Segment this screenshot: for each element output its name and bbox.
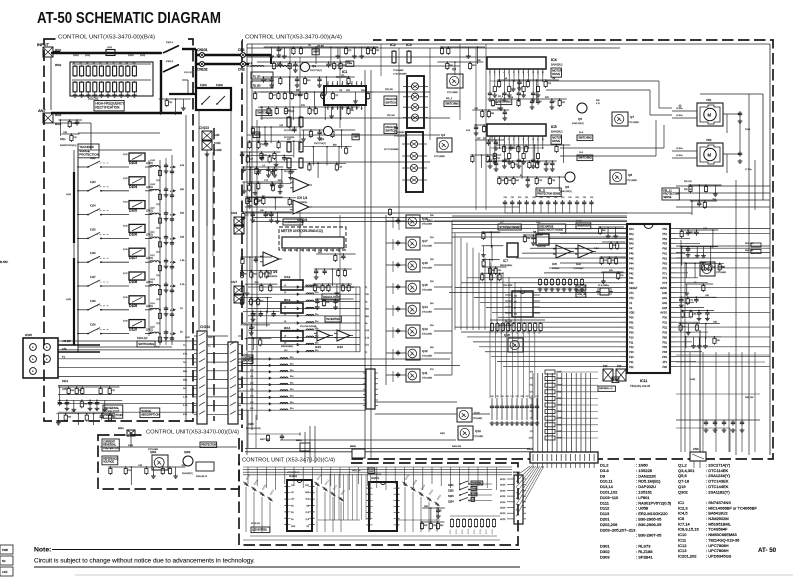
svg-text:9BA: 9BA bbox=[365, 308, 369, 311]
svg-text:: 1S5226: : 1S5226 bbox=[636, 468, 653, 473]
svg-text:: B30-2905-05: : B30-2905-05 bbox=[636, 517, 662, 522]
svg-text:P21: P21 bbox=[629, 360, 634, 364]
svg-text:C19: C19 bbox=[260, 144, 263, 146]
svg-text:: BA6418U2: : BA6418U2 bbox=[706, 511, 728, 516]
svg-text:RECTIFICATION: RECTIFICATION bbox=[95, 106, 120, 110]
svg-text:R60: R60 bbox=[501, 180, 504, 182]
svg-text:U05B: U05B bbox=[62, 388, 68, 391]
svg-text:Q302: Q302 bbox=[184, 450, 191, 454]
svg-text:W103: W103 bbox=[55, 114, 62, 117]
svg-text:: ER2-M10GK220: : ER2-M10GK220 bbox=[636, 511, 668, 516]
svg-text:ANT: ANT bbox=[38, 108, 47, 113]
svg-text:P40: P40 bbox=[629, 281, 634, 285]
svg-text:C114: C114 bbox=[156, 275, 160, 277]
svg-text:D104: D104 bbox=[129, 185, 137, 189]
svg-text:1: 1 bbox=[683, 299, 684, 301]
svg-text:LF801: LF801 bbox=[146, 281, 153, 284]
svg-text:: RLS73: : RLS73 bbox=[636, 544, 651, 549]
svg-text:Q18: Q18 bbox=[422, 217, 428, 221]
svg-text:SENSE: SENSE bbox=[663, 196, 672, 199]
svg-text:Q18: Q18 bbox=[504, 333, 510, 337]
svg-text:LED BATT(B): LED BATT(B) bbox=[252, 528, 267, 531]
svg-text:C113: C113 bbox=[156, 251, 160, 253]
svg-text:PA2: PA2 bbox=[629, 232, 634, 236]
svg-text:C85: C85 bbox=[516, 396, 519, 398]
svg-text:K1102: K1102 bbox=[216, 84, 223, 87]
svg-text:R47: R47 bbox=[288, 110, 291, 112]
svg-text:: B30-2907-05: : B30-2907-05 bbox=[636, 533, 662, 538]
svg-text:Q15: Q15 bbox=[422, 283, 428, 287]
svg-text:L105: L105 bbox=[66, 299, 72, 301]
svg-text:+88 13F: +88 13F bbox=[62, 340, 71, 343]
svg-text:1: 1 bbox=[284, 250, 285, 252]
svg-text:Q11: Q11 bbox=[422, 371, 428, 375]
svg-text:D103: D103 bbox=[129, 161, 137, 165]
svg-text:P52: P52 bbox=[662, 237, 667, 241]
svg-text:CD4 CD5: CD4 CD5 bbox=[503, 285, 513, 287]
svg-text:INPUT: INPUT bbox=[37, 42, 50, 47]
svg-text:D109: D109 bbox=[129, 304, 137, 308]
svg-text:P50: P50 bbox=[662, 227, 667, 231]
svg-text:90u: 90u bbox=[315, 343, 318, 345]
svg-text:: LF801: : LF801 bbox=[636, 495, 650, 500]
svg-text:11: 11 bbox=[537, 72, 539, 74]
svg-text:A7A: A7A bbox=[183, 413, 188, 416]
svg-text:COMPARATOR: COMPARATOR bbox=[284, 220, 304, 224]
svg-text:: NJM2902M: : NJM2902M bbox=[706, 516, 729, 521]
svg-text:C710: C710 bbox=[529, 438, 533, 440]
svg-text:12: 12 bbox=[542, 72, 544, 74]
svg-text:D303 NE-76: D303 NE-76 bbox=[196, 476, 208, 478]
svg-text:34: 34 bbox=[92, 402, 94, 404]
svg-text:DTC143EK: DTC143EK bbox=[422, 268, 433, 270]
svg-text:C19: C19 bbox=[682, 327, 685, 329]
svg-text:C10: C10 bbox=[538, 180, 541, 182]
svg-text:R403 R60: R403 R60 bbox=[452, 446, 462, 448]
svg-text:DBL_11: DBL_11 bbox=[537, 190, 546, 192]
svg-text:DTC143EK: DTC143EK bbox=[422, 290, 433, 292]
svg-text:Q6: Q6 bbox=[565, 185, 569, 189]
svg-text:Q5,6: Q5,6 bbox=[678, 473, 687, 478]
svg-text:IC201,202: IC201,202 bbox=[678, 553, 697, 558]
svg-text:5: 5 bbox=[508, 139, 509, 141]
svg-text:MODE: MODE bbox=[500, 496, 506, 498]
svg-text:S202: S202 bbox=[448, 490, 454, 493]
svg-text:L108: L108 bbox=[150, 160, 156, 162]
svg-text:90u: 90u bbox=[290, 408, 293, 410]
svg-text:P42: P42 bbox=[629, 271, 634, 275]
svg-text:11: 11 bbox=[337, 108, 339, 110]
svg-text:: 1S5161: : 1S5161 bbox=[636, 490, 653, 495]
svg-text:W602: W602 bbox=[350, 446, 356, 448]
svg-text:Note:: Note: bbox=[34, 547, 51, 554]
svg-text:P33: P33 bbox=[662, 330, 667, 334]
svg-text:D110: D110 bbox=[129, 328, 137, 332]
svg-text:D101,102: D101,102 bbox=[600, 490, 618, 495]
svg-text:SEL0: SEL0 bbox=[490, 329, 492, 334]
svg-text:SYSTEM RESET: SYSTEM RESET bbox=[499, 225, 521, 229]
svg-text:: RLZ188: : RLZ188 bbox=[636, 549, 653, 554]
svg-text:SWITCHING: SWITCHING bbox=[578, 136, 592, 139]
svg-text:IC5: IC5 bbox=[551, 125, 557, 129]
svg-text:8: 8 bbox=[523, 72, 524, 74]
svg-text:: NM93C66EM83: : NM93C66EM83 bbox=[706, 532, 737, 537]
svg-text:IC6: IC6 bbox=[678, 516, 685, 521]
svg-text:D302: D302 bbox=[600, 549, 610, 554]
svg-text:MODE: MODE bbox=[500, 508, 506, 510]
svg-text:P31: P31 bbox=[662, 321, 667, 325]
svg-text:TC4066BF: TC4066BF bbox=[393, 70, 404, 72]
svg-text:DTC143EK: DTC143EK bbox=[148, 449, 159, 451]
svg-text:GNC: GNC bbox=[185, 337, 190, 339]
svg-text:1: 1 bbox=[327, 84, 328, 86]
svg-text:SEL8: SEL8 bbox=[533, 329, 535, 334]
svg-text:15: 15 bbox=[356, 108, 358, 110]
svg-text:R105: R105 bbox=[745, 129, 751, 131]
svg-text:: B30-2906-05: : B30-2906-05 bbox=[636, 522, 662, 527]
svg-text:R2 100: R2 100 bbox=[253, 86, 261, 88]
svg-text:A7A: A7A bbox=[466, 129, 471, 132]
svg-text:C25: C25 bbox=[335, 95, 338, 97]
svg-text:Q302: Q302 bbox=[678, 489, 689, 494]
svg-text:IC1: IC1 bbox=[342, 70, 347, 74]
svg-text:R38: R38 bbox=[70, 390, 73, 392]
svg-text:9: 9 bbox=[327, 108, 328, 110]
svg-text:1: 1 bbox=[489, 139, 490, 141]
svg-text:P90: P90 bbox=[662, 365, 667, 369]
svg-text:5: 5 bbox=[508, 72, 509, 74]
svg-text:L5 90u: L5 90u bbox=[676, 148, 683, 150]
svg-text:DTC143EK: DTC143EK bbox=[422, 378, 433, 380]
svg-text:D112: D112 bbox=[62, 379, 69, 383]
svg-text:MODE: MODE bbox=[500, 485, 506, 487]
svg-text:uPD6345GS: uPD6345GS bbox=[287, 472, 300, 474]
svg-text:CN3: CN3 bbox=[231, 211, 237, 215]
svg-text:R90: R90 bbox=[307, 80, 310, 82]
svg-text:: 2SA1182(Y): : 2SA1182(Y) bbox=[706, 489, 730, 494]
svg-text:10: 10 bbox=[332, 108, 334, 110]
svg-text:CN5: CN5 bbox=[527, 447, 533, 451]
svg-text:10: 10 bbox=[338, 250, 340, 252]
svg-text:K107: K107 bbox=[90, 276, 96, 279]
svg-text:IC9: IC9 bbox=[576, 262, 581, 266]
svg-text:R20: R20 bbox=[561, 102, 564, 104]
svg-text:Q7-18: Q7-18 bbox=[678, 479, 690, 484]
svg-text:REGULATOR: REGULATOR bbox=[323, 295, 340, 299]
svg-text:1: 1 bbox=[489, 72, 490, 74]
svg-text:11: 11 bbox=[440, 510, 442, 512]
svg-text:L111: L111 bbox=[150, 231, 155, 233]
svg-text:LED: LED bbox=[369, 470, 374, 472]
svg-text:LF801: LF801 bbox=[146, 233, 153, 236]
svg-text:R81 10K: R81 10K bbox=[684, 181, 692, 183]
svg-text:D9: D9 bbox=[600, 473, 606, 478]
svg-text:Q12: Q12 bbox=[422, 349, 428, 353]
svg-text:8: 8 bbox=[68, 402, 69, 404]
svg-text:C88: C88 bbox=[532, 197, 535, 199]
svg-text:C81: C81 bbox=[496, 396, 499, 398]
svg-text:IC3: IC3 bbox=[394, 126, 399, 130]
svg-text:6: 6 bbox=[351, 84, 352, 86]
svg-text:C86: C86 bbox=[504, 197, 507, 199]
svg-text:VDD: VDD bbox=[629, 311, 635, 315]
svg-text:D102: D102 bbox=[73, 54, 79, 57]
svg-text:9BA: 9BA bbox=[183, 370, 188, 373]
svg-text:Q7: Q7 bbox=[630, 115, 634, 119]
svg-text:P46: P46 bbox=[629, 252, 634, 256]
svg-text:C57: C57 bbox=[497, 158, 500, 160]
svg-text:PROTECTION SENSE: PROTECTION SENSE bbox=[537, 193, 561, 195]
svg-text:IC6 1/4: IC6 1/4 bbox=[297, 196, 308, 200]
svg-text:3: 3 bbox=[499, 72, 500, 74]
svg-text:or MC14066BF: or MC14066BF bbox=[393, 74, 407, 76]
svg-text:C27: C27 bbox=[111, 390, 114, 392]
svg-text:P12: P12 bbox=[629, 345, 634, 349]
svg-text:uPD6345GS: uPD6345GS bbox=[369, 474, 382, 476]
svg-text:XT2: XT2 bbox=[629, 296, 634, 300]
svg-text:R86 10K: R86 10K bbox=[745, 397, 754, 399]
svg-text:10: 10 bbox=[532, 72, 534, 74]
svg-text:DOWN: DOWN bbox=[472, 493, 479, 495]
svg-text:R65: R65 bbox=[263, 274, 266, 276]
svg-text:IC16: IC16 bbox=[337, 345, 343, 349]
svg-text:90u: 90u bbox=[290, 402, 293, 404]
svg-text:C98: C98 bbox=[497, 270, 500, 272]
svg-text:R65: R65 bbox=[424, 525, 427, 527]
svg-text:: UPC7808H: : UPC7808H bbox=[706, 548, 729, 553]
svg-text:C92: C92 bbox=[169, 102, 172, 104]
svg-text:R85 100: R85 100 bbox=[745, 250, 754, 252]
svg-text:8.7A: 8.7A bbox=[180, 283, 185, 286]
svg-text:R84: R84 bbox=[449, 65, 452, 67]
svg-text:90u: 90u bbox=[315, 321, 318, 323]
svg-text:90u: 90u bbox=[315, 299, 318, 301]
svg-text:D1,2: D1,2 bbox=[600, 463, 609, 468]
svg-text:8: 8 bbox=[523, 139, 524, 141]
svg-text:DTC143EK: DTC143EK bbox=[434, 156, 446, 158]
svg-text:PR2 100: PR2 100 bbox=[385, 89, 394, 91]
svg-text:R69: R69 bbox=[268, 274, 271, 276]
svg-text:P51: P51 bbox=[662, 232, 667, 236]
svg-text:DRIVE: DRIVE bbox=[552, 139, 560, 143]
svg-text:C116: C116 bbox=[156, 323, 160, 325]
svg-text:16: 16 bbox=[512, 147, 514, 149]
svg-text:XT1: XT1 bbox=[629, 291, 634, 295]
svg-text:X1 4.19MHz: X1 4.19MHz bbox=[598, 285, 609, 287]
svg-text:TUNE: TUNE bbox=[472, 488, 478, 490]
svg-text:BA6418U2: BA6418U2 bbox=[551, 131, 563, 134]
svg-text:METER UNIT(X59-3940-012): METER UNIT(X59-3940-012) bbox=[281, 229, 323, 233]
svg-text:9: 9 bbox=[98, 402, 99, 404]
svg-text:CN102: CN102 bbox=[197, 68, 208, 72]
svg-text:C71: C71 bbox=[530, 378, 533, 380]
svg-text:CONTROL UNIT(X53-3470-00)(B/4): CONTROL UNIT(X53-3470-00)(B/4) bbox=[58, 35, 155, 41]
svg-text:W102: W102 bbox=[55, 64, 62, 67]
svg-text:D3-8: D3-8 bbox=[600, 468, 609, 473]
svg-text:PA3: PA3 bbox=[629, 227, 634, 231]
svg-text:D113: D113 bbox=[600, 511, 610, 516]
svg-text:K105: K105 bbox=[90, 228, 96, 231]
svg-text:R38: R38 bbox=[68, 417, 71, 419]
svg-text:D101: D101 bbox=[128, 54, 134, 57]
svg-text:4.5M: 4.5M bbox=[347, 63, 352, 65]
svg-text:Q12: Q12 bbox=[474, 411, 480, 415]
svg-text:W101: W101 bbox=[55, 49, 62, 52]
svg-text:D12: D12 bbox=[561, 197, 564, 199]
svg-text:PA1: PA1 bbox=[629, 237, 634, 241]
svg-text:C31: C31 bbox=[73, 137, 76, 139]
svg-text:14: 14 bbox=[540, 101, 542, 103]
svg-text:SEL9: SEL9 bbox=[539, 329, 541, 334]
svg-text:: DAN222K: : DAN222K bbox=[636, 473, 656, 478]
svg-text:11: 11 bbox=[537, 139, 539, 141]
svg-text:C80: C80 bbox=[491, 396, 494, 398]
svg-text:TC4S584F: TC4S584F bbox=[549, 268, 560, 270]
svg-text:90u: 90u bbox=[315, 314, 318, 316]
svg-text:D106: D106 bbox=[129, 232, 137, 236]
svg-text:A5A: A5A bbox=[180, 212, 185, 215]
svg-text:: 2SA1234(Y): : 2SA1234(Y) bbox=[706, 473, 731, 478]
svg-text:Q17: Q17 bbox=[422, 239, 428, 243]
svg-text:C76: C76 bbox=[530, 411, 533, 413]
svg-text:90u: 90u bbox=[315, 292, 318, 294]
svg-text:P02: P02 bbox=[629, 326, 634, 330]
svg-text:L104: L104 bbox=[66, 194, 72, 196]
svg-text:P03: P03 bbox=[629, 330, 634, 334]
svg-text:R202: R202 bbox=[456, 529, 458, 534]
svg-text:DTC143EK: DTC143EK bbox=[626, 180, 638, 182]
svg-text:CONTROL UNIT(X53-3470-00)(D/4): CONTROL UNIT(X53-3470-00)(D/4) bbox=[146, 430, 239, 436]
svg-text:S204: S204 bbox=[448, 501, 454, 504]
svg-text:IC1: IC1 bbox=[678, 500, 685, 505]
svg-text:6: 6 bbox=[513, 139, 514, 141]
svg-text:Q13: Q13 bbox=[475, 429, 481, 433]
svg-text:IC4: IC4 bbox=[551, 58, 557, 62]
svg-text:R47: R47 bbox=[78, 390, 81, 392]
svg-text:PWB: PWB bbox=[2, 548, 8, 552]
svg-text:C72: C72 bbox=[690, 300, 693, 302]
svg-text:90u: 90u bbox=[315, 307, 318, 309]
svg-text:DAN222K: DAN222K bbox=[537, 245, 547, 248]
svg-text:R82 10K: R82 10K bbox=[684, 189, 692, 191]
svg-text:SWITCHING: SWITCHING bbox=[497, 100, 511, 103]
svg-text:Q16: Q16 bbox=[422, 261, 428, 265]
svg-text:IC4,5: IC4,5 bbox=[678, 511, 688, 516]
svg-text:5: 5 bbox=[308, 250, 309, 252]
svg-text:Q1,2: Q1,2 bbox=[678, 463, 687, 468]
svg-text:R77: R77 bbox=[273, 95, 276, 97]
svg-text:R68 0: R68 0 bbox=[427, 220, 433, 222]
svg-text:IC2,3: IC2,3 bbox=[678, 505, 688, 510]
svg-text:AVSS: AVSS bbox=[660, 311, 667, 315]
svg-text:31: 31 bbox=[286, 157, 288, 159]
svg-text:R208: R208 bbox=[492, 529, 494, 534]
svg-text:C111: C111 bbox=[156, 204, 160, 206]
svg-text:8.7A: 8.7A bbox=[365, 336, 370, 339]
svg-text:16: 16 bbox=[361, 108, 363, 110]
svg-text:DR_6: DR_6 bbox=[498, 96, 504, 98]
svg-text:1.5A: 1.5A bbox=[180, 259, 185, 262]
svg-text:3: 3 bbox=[296, 250, 297, 252]
svg-text:D202,206: D202,206 bbox=[600, 522, 618, 527]
svg-text:P53: P53 bbox=[662, 242, 667, 246]
svg-text:3: 3 bbox=[499, 139, 500, 141]
svg-text:: U05B: : U05B bbox=[636, 506, 649, 511]
svg-text:DAP202U x 2: DAP202U x 2 bbox=[599, 387, 613, 390]
svg-text:MOTOR: MOTOR bbox=[552, 69, 562, 73]
svg-text:L6 90u: L6 90u bbox=[676, 115, 683, 117]
svg-text:R204: R204 bbox=[468, 529, 470, 534]
svg-text:5BA: 5BA bbox=[183, 378, 188, 381]
svg-text:DTC143EK: DTC143EK bbox=[447, 92, 459, 94]
svg-text:: 78214GQ-019-36: : 78214GQ-019-36 bbox=[706, 537, 740, 542]
svg-text:P83: P83 bbox=[662, 350, 667, 354]
svg-text:D13: D13 bbox=[603, 365, 608, 368]
svg-text:K104: K104 bbox=[90, 205, 96, 208]
svg-text:R206: R206 bbox=[480, 529, 482, 534]
svg-text:VOLTAGE: VOLTAGE bbox=[103, 461, 114, 464]
svg-text:(R6B): (R6B) bbox=[140, 55, 146, 57]
svg-text:R46: R46 bbox=[515, 180, 518, 182]
svg-text:1: 1 bbox=[321, 132, 322, 134]
svg-text:8: 8 bbox=[361, 84, 362, 86]
svg-text:C56: C56 bbox=[326, 302, 329, 304]
svg-text:: 1N60: : 1N60 bbox=[636, 463, 649, 468]
svg-text:D13,14: D13,14 bbox=[600, 484, 614, 489]
svg-text:P32: P32 bbox=[662, 326, 667, 330]
svg-text:SC20-201: SC20-201 bbox=[251, 523, 261, 525]
svg-text:SWITCHING: SWITCHING bbox=[138, 342, 154, 346]
svg-text:VR1: VR1 bbox=[706, 98, 712, 102]
svg-text:R69: R69 bbox=[495, 102, 498, 104]
svg-text:R32: R32 bbox=[514, 164, 517, 166]
svg-text:90u: 90u bbox=[290, 383, 293, 385]
svg-text:W104: W104 bbox=[55, 123, 62, 126]
svg-text:7: 7 bbox=[518, 139, 519, 141]
svg-text:ABSORPTION: ABSORPTION bbox=[141, 412, 159, 416]
svg-text:MODE: MODE bbox=[500, 519, 506, 521]
svg-text:C72: C72 bbox=[530, 385, 533, 387]
svg-text:DTC143EK: DTC143EK bbox=[422, 356, 433, 358]
svg-text:Q19: Q19 bbox=[678, 484, 686, 489]
svg-text:L110: L110 bbox=[150, 208, 155, 210]
svg-text:12: 12 bbox=[341, 108, 343, 110]
svg-text:C84: C84 bbox=[511, 396, 514, 398]
svg-text:M: M bbox=[708, 113, 712, 118]
svg-text:90u: 90u bbox=[315, 350, 318, 352]
svg-text:25: 25 bbox=[254, 313, 256, 315]
svg-text:: UPC7808H: : UPC7808H bbox=[706, 543, 729, 548]
svg-text:IC11: IC11 bbox=[640, 379, 647, 383]
svg-text:8: 8 bbox=[78, 122, 79, 124]
svg-text:3: 3 bbox=[337, 84, 338, 86]
svg-text:: MIC14066BF or TC4066BF: : MIC14066BF or TC4066BF bbox=[706, 505, 757, 510]
svg-text:R92: R92 bbox=[576, 197, 579, 199]
svg-text:AN3: AN3 bbox=[662, 306, 668, 310]
svg-text:COM_UP: COM_UP bbox=[577, 294, 586, 296]
svg-text:L114: L114 bbox=[150, 303, 155, 305]
svg-text:: SF2B41: : SF2B41 bbox=[636, 554, 653, 559]
svg-text:ELECTRICITY DIODE: ELECTRICITY DIODE bbox=[539, 229, 563, 232]
svg-text:D303: D303 bbox=[600, 554, 610, 559]
svg-text:R96: R96 bbox=[527, 238, 530, 240]
svg-text:C92: C92 bbox=[590, 197, 593, 199]
svg-text:A7A: A7A bbox=[180, 164, 185, 167]
svg-text:D3: D3 bbox=[296, 88, 300, 92]
svg-text:IC3 TC4066BF: IC3 TC4066BF bbox=[384, 149, 399, 151]
svg-text:: TC4S584F: : TC4S584F bbox=[706, 527, 728, 532]
svg-text:C57: C57 bbox=[245, 215, 248, 217]
